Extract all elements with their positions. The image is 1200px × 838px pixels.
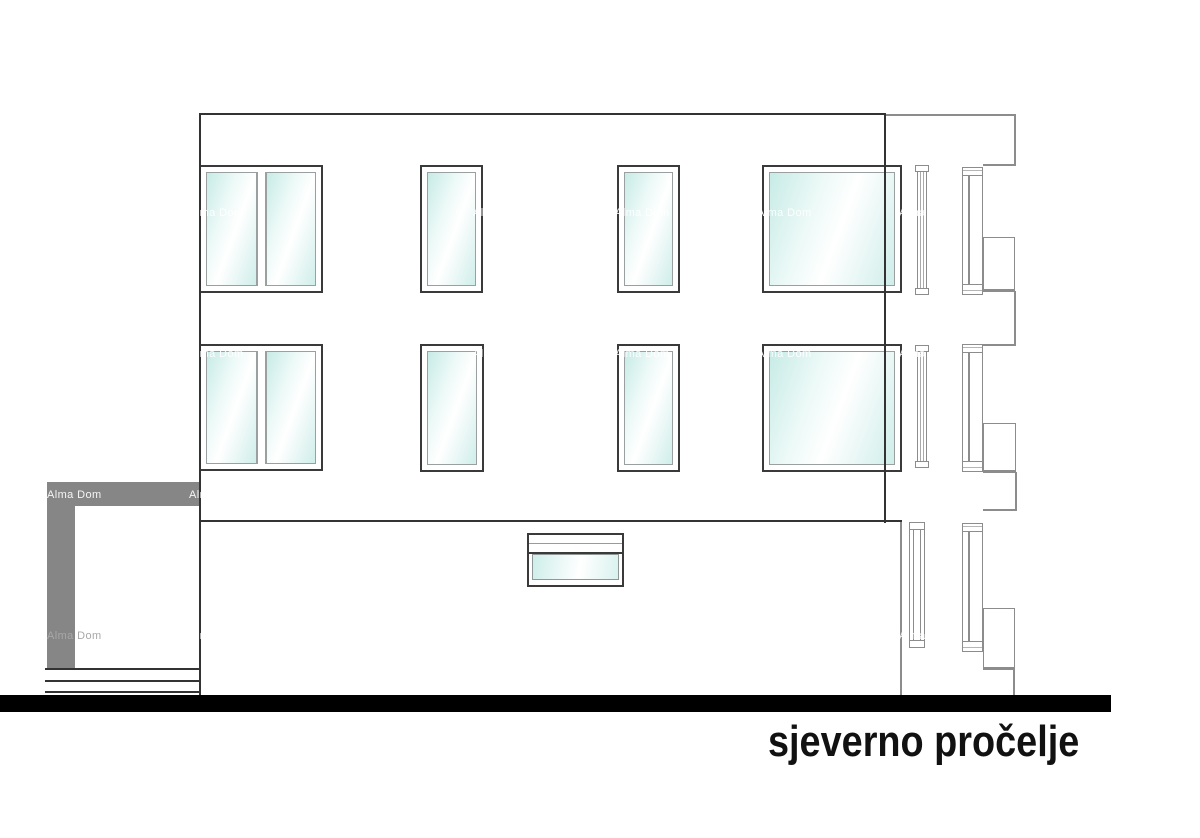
watermark-text: Alma Dom [331, 489, 386, 501]
ground-floor-right-edge [900, 522, 902, 696]
watermark-text: Alma Dom [615, 489, 670, 501]
entry-step-line [45, 668, 200, 670]
small-window-band [529, 535, 622, 544]
window-large [762, 165, 902, 293]
side-outline [983, 164, 1015, 166]
side-frame-cap [963, 284, 982, 294]
watermark-text: Alma Dom [473, 66, 528, 78]
watermark-text: Alma Dom [1041, 348, 1096, 360]
terrace-left-post [47, 482, 75, 670]
window-glass [266, 172, 317, 286]
slim-mullion-body [917, 350, 927, 463]
facade-left-edge [199, 113, 201, 697]
window-glass [427, 172, 476, 286]
balcony-step-profile [983, 237, 1015, 292]
watermark-text: Alma Dom [899, 489, 954, 501]
window-frame-inner [427, 351, 477, 465]
building-elevation: Alma DomAlma DomAlma DomAlma DomAlma Dom… [0, 0, 1200, 838]
window-narrow [420, 165, 483, 293]
watermark-text: Alma Dom [473, 630, 528, 642]
watermark-text: Alma Dom [899, 66, 954, 78]
window-glass [266, 351, 317, 464]
side-slim-window-cap [910, 640, 924, 647]
drawing-title: sjeverno pročelje [768, 719, 1079, 765]
watermark-text: Alma Dom [47, 66, 102, 78]
side-slim-window-inner [913, 529, 921, 641]
window-double [199, 165, 323, 293]
slim-mullion-body [917, 170, 927, 290]
side-outline [1014, 114, 1016, 166]
side-frame-jamb [968, 531, 970, 642]
balcony-step-profile [983, 423, 1016, 473]
side-frame-profile [962, 167, 983, 295]
window-double [199, 344, 323, 471]
watermark-text: Alma Dom [331, 630, 386, 642]
window-narrow [617, 165, 680, 293]
side-slim-mullion [915, 165, 929, 295]
floor-separation-line [199, 520, 902, 522]
watermark-text: Alma Dom [331, 66, 386, 78]
small-window-band [529, 544, 622, 554]
watermark-text: Alma Dom [473, 489, 528, 501]
watermark-text: Alma Dom [615, 630, 670, 642]
window-glass [206, 172, 257, 286]
window-frame-inner [624, 172, 673, 286]
side-outline [983, 344, 1015, 346]
side-outline [983, 509, 1016, 511]
watermark-text: Alma Dom [1041, 630, 1096, 642]
window-glass [624, 351, 673, 465]
side-frame-jamb [968, 175, 970, 285]
watermark-text: Alma Dom [331, 348, 386, 360]
side-frame-cap [963, 168, 982, 176]
side-frame-profile [962, 344, 983, 472]
watermark-text: Alma Dom [615, 66, 670, 78]
window-mullion [257, 351, 266, 464]
side-frame-jamb [968, 352, 970, 462]
window-frame-inner [206, 351, 316, 464]
window-narrow [420, 344, 484, 472]
watermark-text: Alma Dom [1041, 66, 1096, 78]
facade-top-edge [199, 113, 886, 115]
window-glass [624, 172, 673, 286]
watermark-text: Alma Dom [757, 66, 812, 78]
roof-extension-line [886, 114, 1015, 116]
side-frame-cap [963, 641, 982, 651]
slim-mullion-cap [915, 461, 929, 468]
entry-step-line [45, 691, 200, 693]
watermark-text: Alma Dom [899, 630, 954, 642]
window-glass [769, 172, 895, 286]
window-large [762, 344, 902, 472]
side-frame-cap [963, 461, 982, 471]
side-frame-cap [963, 524, 982, 532]
side-frame-profile [962, 523, 983, 652]
slim-mullion-cap [915, 165, 929, 172]
small-window-band [529, 580, 622, 585]
facade-right-edge [884, 113, 886, 523]
window-frame-inner [206, 172, 316, 286]
watermark-text: Alma Dom [1041, 489, 1096, 501]
side-outline [1015, 472, 1017, 511]
entry-step-line [45, 680, 200, 682]
window-glass [427, 351, 477, 465]
ground-line [0, 695, 1111, 712]
window-frame-inner [624, 351, 673, 465]
window-narrow [617, 344, 680, 472]
small-window-glass [532, 554, 619, 580]
watermark-text: Alma Dom [189, 66, 244, 78]
side-outline [1013, 670, 1015, 696]
watermark-text: Alma Dom [189, 630, 244, 642]
watermark-text: Alma Dom [47, 348, 102, 360]
watermark-text: Alma Dom [331, 207, 386, 219]
watermark-text: Alma Dom [757, 489, 812, 501]
elevation-drawing: Alma DomAlma DomAlma DomAlma DomAlma Dom… [0, 0, 1200, 838]
window-frame-inner [769, 172, 895, 286]
watermark-text: Alma Dom [1041, 207, 1096, 219]
balcony-step-profile [983, 608, 1015, 670]
side-slim-window [909, 522, 925, 648]
watermark-text: Alma Dom [757, 630, 812, 642]
window-frame-inner [769, 351, 895, 465]
side-slim-window-cap [910, 523, 924, 530]
slim-mullion-cap [915, 288, 929, 295]
watermark-text: Alma Dom [47, 207, 102, 219]
window-frame-inner [427, 172, 476, 286]
window-glass [769, 351, 895, 465]
window-glass [206, 351, 257, 464]
side-slim-mullion [915, 345, 929, 468]
side-outline [1014, 291, 1016, 346]
window-mullion [257, 172, 266, 286]
slim-mullion-cap [915, 345, 929, 352]
small-window [527, 533, 624, 587]
side-frame-cap [963, 345, 982, 353]
